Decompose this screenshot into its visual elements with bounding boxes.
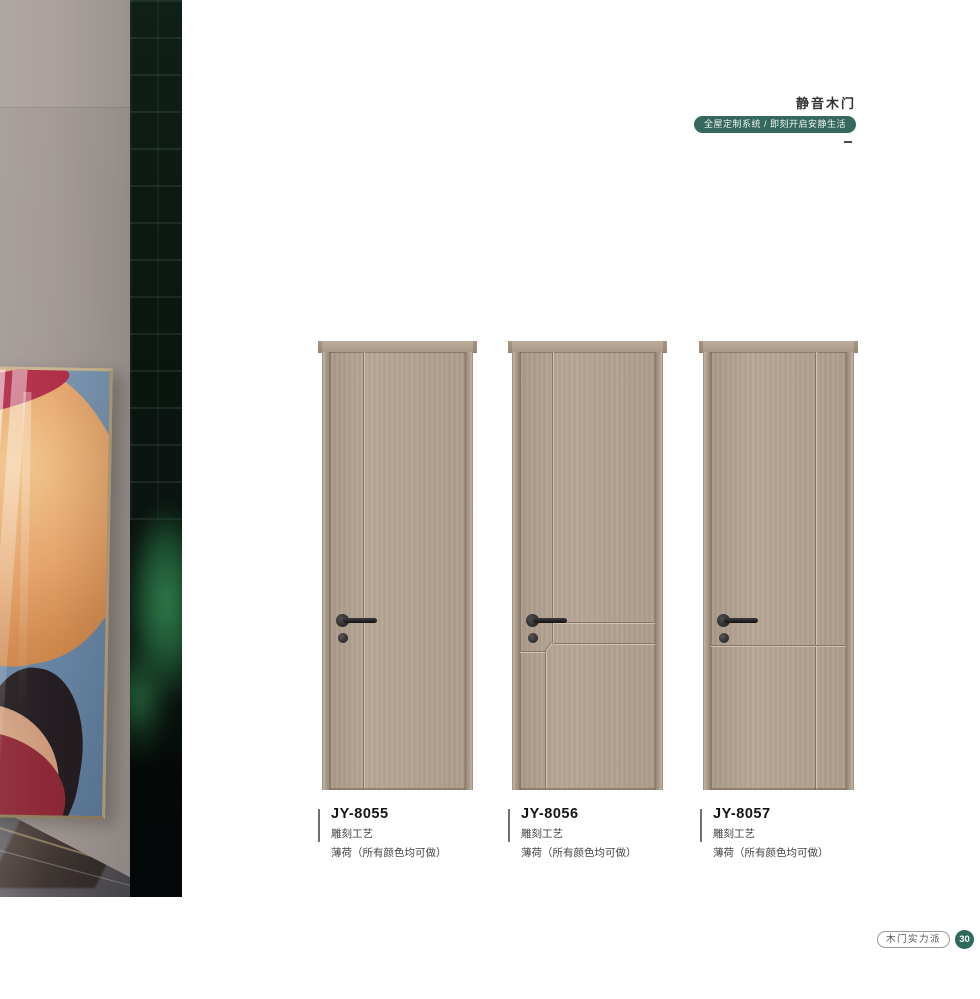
door-frame-jamb [465,352,473,790]
groove-vertical [815,352,817,790]
lock-knob [338,633,348,643]
door-frame-jamb [512,352,520,790]
product-door-jy-8056 [512,341,663,790]
groove-vertical [552,352,554,643]
door-frame-jamb [703,352,711,790]
lock-knob [528,633,538,643]
product-color-note: 薄荷（所有颜色均可做） [331,845,498,860]
brand-stamp: 木门实力派 [877,931,950,948]
product-craft: 雕刻工艺 [331,826,498,841]
product-craft: 雕刻工艺 [713,826,880,841]
page-number-badge: 30 [955,930,974,949]
page-title: 静音木门 [796,93,856,112]
door-handle [526,614,570,644]
groove-horizontal [711,645,846,647]
door-frame-jamb [655,352,663,790]
product-color-note: 薄荷（所有颜色均可做） [713,845,880,860]
product-label: JY-8057 雕刻工艺 薄荷（所有颜色均可做） [700,806,880,860]
label-divider-bar [508,809,510,842]
header-tick-mark [844,141,852,143]
door-leaf [520,352,655,790]
groove-vertical [545,652,547,790]
handle-lever [533,618,567,623]
groove-vertical [363,352,365,790]
series-badge: 全屋定制系统 / 即刻开启安静生活 [694,116,856,133]
interior-photo [0,0,130,897]
door-leaf [711,352,846,790]
product-model: JY-8056 [521,806,688,822]
door-frame-jamb [846,352,854,790]
door-frame-jamb [322,352,330,790]
door-handle [336,614,380,644]
handle-lever [343,618,377,623]
product-door-jy-8055 [322,341,473,790]
product-door-jy-8057 [703,341,854,790]
side-banner: CUSTOMIZED DOOR 新品色系 NEW UNPAINTED WOODE… [130,0,182,897]
groove-horizontal [520,651,546,653]
product-model: JY-8057 [713,806,880,822]
handle-lever [724,618,758,623]
product-label: JY-8056 雕刻工艺 薄荷（所有颜色均可做） [508,806,688,860]
label-divider-bar [318,809,320,842]
banner-bottom-fade [130,690,182,897]
door-handle [717,614,761,644]
door-leaf [330,352,465,790]
lock-knob [719,633,729,643]
product-model: JY-8055 [331,806,498,822]
product-color-note: 薄荷（所有颜色均可做） [521,845,688,860]
product-label: JY-8055 雕刻工艺 薄荷（所有颜色均可做） [318,806,498,860]
catalog-page: CUSTOMIZED DOOR 新品色系 NEW UNPAINTED WOODE… [0,0,980,999]
wall-shadow-overlay [0,0,130,897]
brick-wall-texture [130,0,182,520]
product-craft: 雕刻工艺 [521,826,688,841]
label-divider-bar [700,809,702,842]
